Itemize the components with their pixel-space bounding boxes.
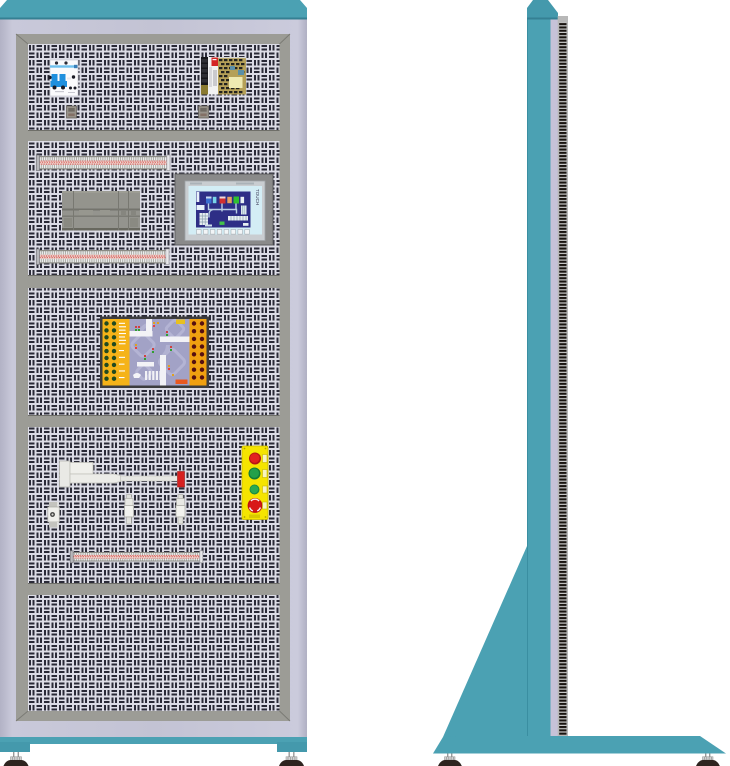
svg-text:TOUCH: TOUCH	[255, 189, 260, 205]
